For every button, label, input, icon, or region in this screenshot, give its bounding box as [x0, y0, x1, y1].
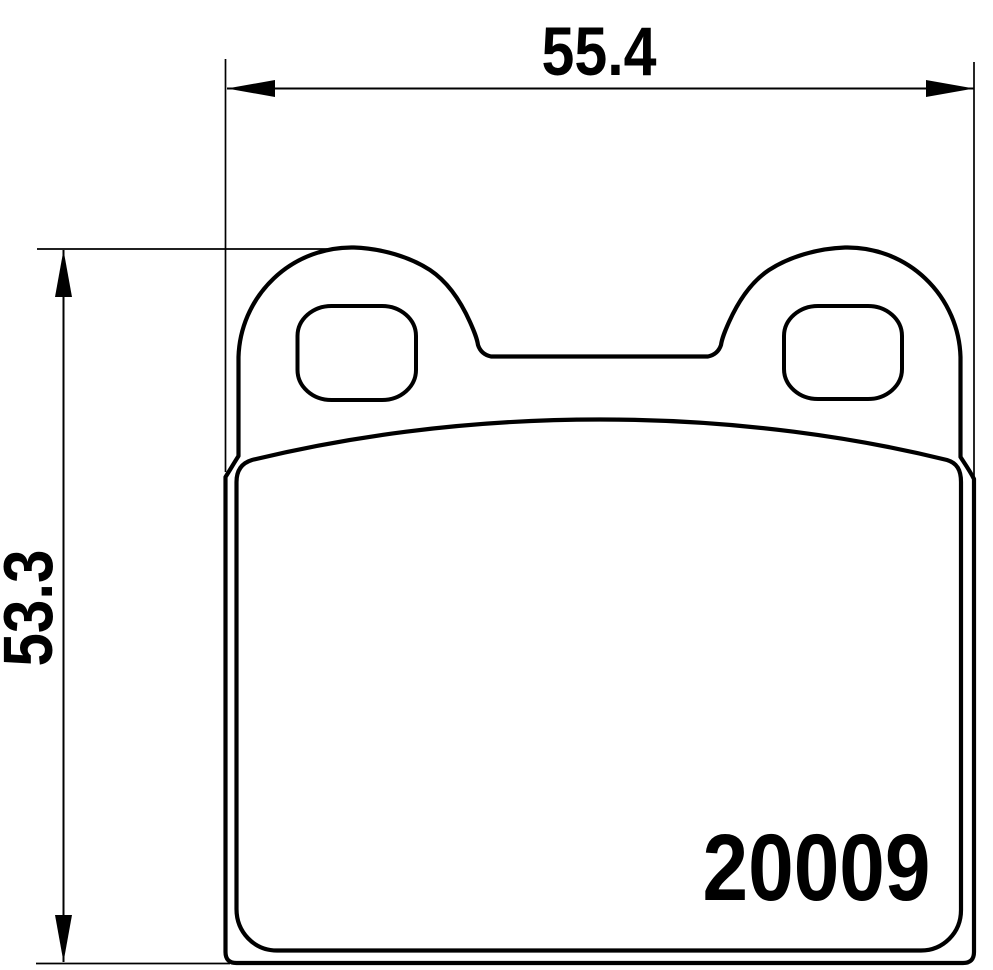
svg-text:20009: 20009: [703, 815, 931, 921]
svg-text:55.4: 55.4: [542, 13, 657, 90]
svg-text:53.3: 53.3: [0, 550, 67, 667]
